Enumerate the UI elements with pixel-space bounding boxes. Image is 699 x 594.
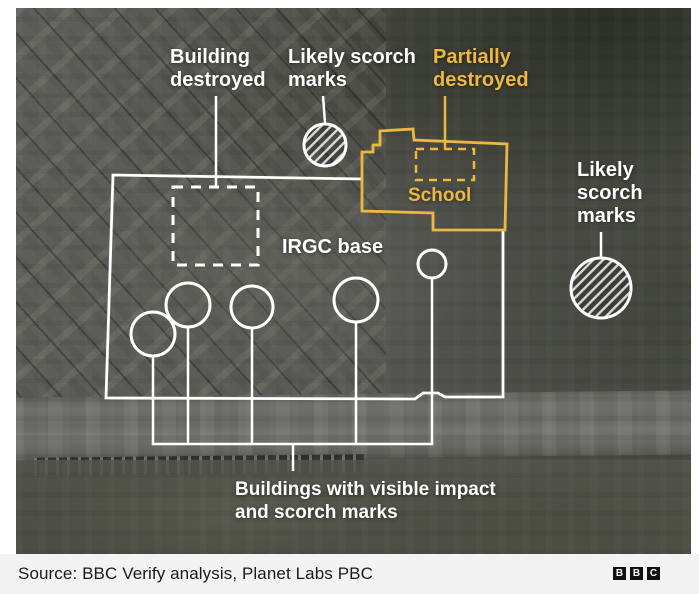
label-line: destroyed <box>433 69 529 92</box>
label-impact: Buildings with visible impact and scorch… <box>235 478 496 524</box>
bbc-logo-letter: B <box>613 567 626 580</box>
label-line: Likely scorch <box>288 46 416 69</box>
label-line: marks <box>577 205 643 228</box>
bbc-logo: B B C <box>613 567 660 580</box>
label-irgc-base: IRGC base <box>282 236 383 259</box>
label-line: marks <box>288 69 416 92</box>
label-line: Likely <box>577 159 643 182</box>
label-line: Building <box>170 46 266 69</box>
label-line: Partially <box>433 46 529 69</box>
bbc-verify-graphic: Building destroyed Likely scorch marks P… <box>0 0 699 594</box>
label-partially-destroyed: Partially destroyed <box>433 46 529 92</box>
label-line: and scorch marks <box>235 501 496 524</box>
label-building-destroyed: Building destroyed <box>170 46 266 92</box>
label-scorch-top: Likely scorch marks <box>288 46 416 92</box>
label-school: School <box>408 184 471 207</box>
bbc-logo-letter: C <box>647 567 660 580</box>
label-line: Buildings with visible impact <box>235 478 496 501</box>
label-scorch-right: Likely scorch marks <box>577 159 643 228</box>
bbc-logo-letter: B <box>630 567 643 580</box>
label-line: scorch <box>577 182 643 205</box>
source-text: Source: BBC Verify analysis, Planet Labs… <box>18 564 373 584</box>
source-bar: Source: BBC Verify analysis, Planet Labs… <box>0 554 699 594</box>
label-line: destroyed <box>170 69 266 92</box>
